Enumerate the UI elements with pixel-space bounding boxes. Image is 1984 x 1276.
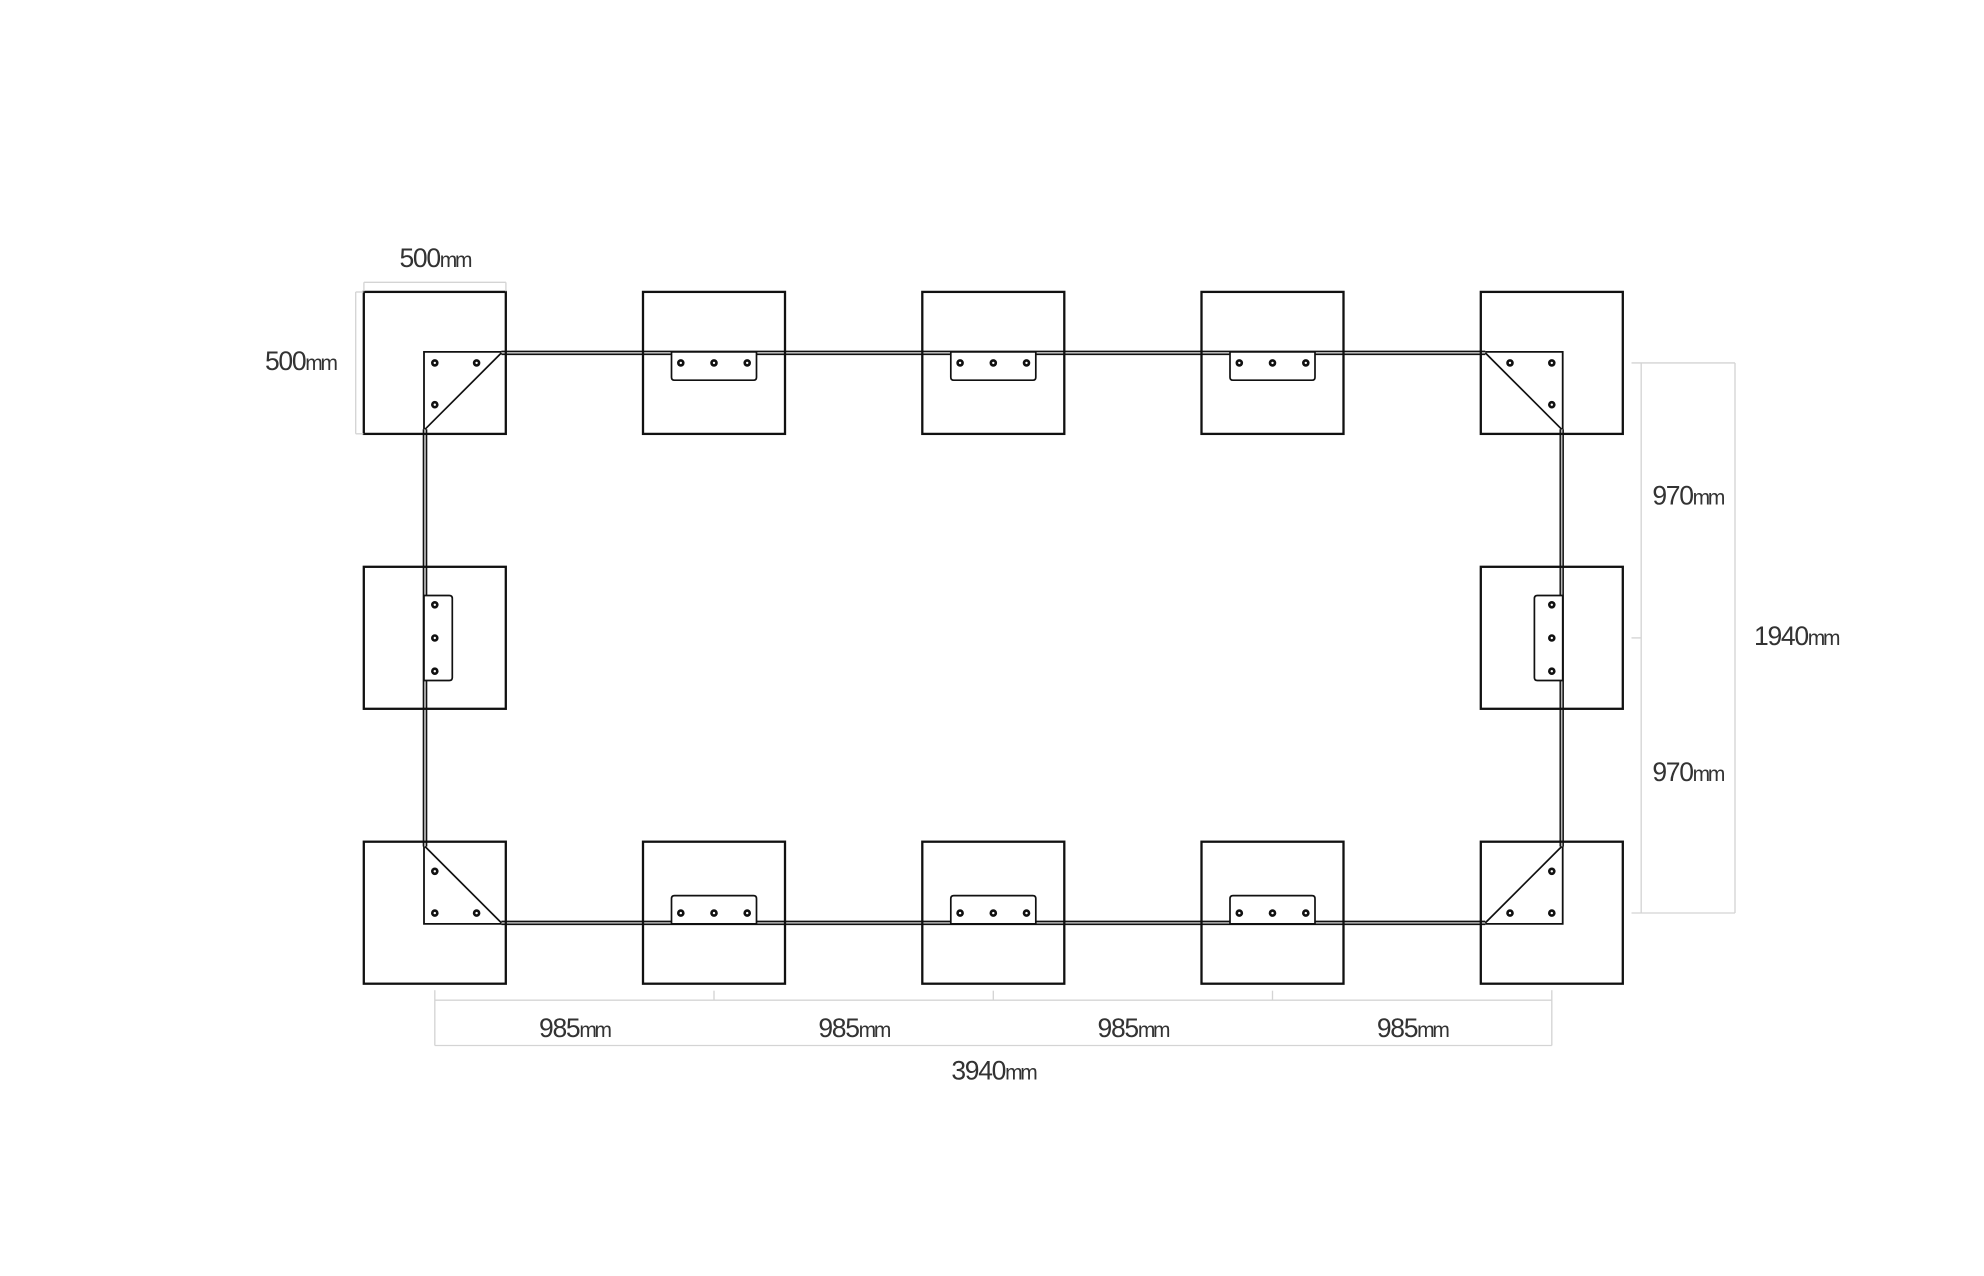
- svg-text:970mm: 970mm: [1652, 481, 1725, 511]
- svg-text:985mm: 985mm: [818, 1013, 891, 1043]
- svg-text:3940mm: 3940mm: [951, 1056, 1037, 1086]
- svg-text:985mm: 985mm: [539, 1013, 612, 1043]
- svg-text:1940mm: 1940mm: [1754, 621, 1840, 651]
- svg-text:985mm: 985mm: [1377, 1013, 1450, 1043]
- svg-text:500mm: 500mm: [399, 243, 472, 273]
- svg-text:500mm: 500mm: [265, 346, 338, 376]
- svg-text:985mm: 985mm: [1098, 1013, 1171, 1043]
- svg-text:970mm: 970mm: [1652, 757, 1725, 787]
